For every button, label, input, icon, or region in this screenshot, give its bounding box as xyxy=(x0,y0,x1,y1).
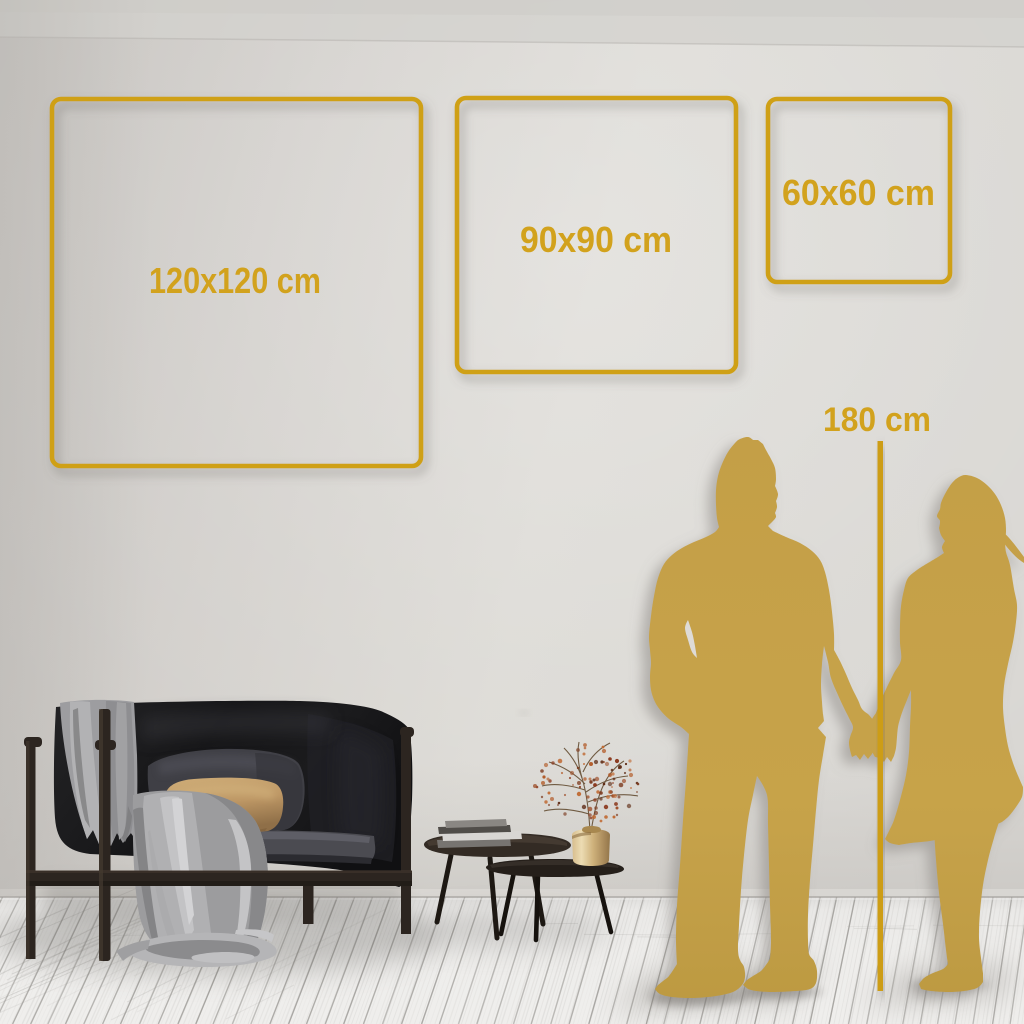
svg-text:180 cm: 180 cm xyxy=(823,401,931,439)
svg-text:60x60 cm: 60x60 cm xyxy=(782,172,935,213)
svg-text:90x90 cm: 90x90 cm xyxy=(520,219,672,260)
svg-text:120x120 cm: 120x120 cm xyxy=(149,260,321,301)
